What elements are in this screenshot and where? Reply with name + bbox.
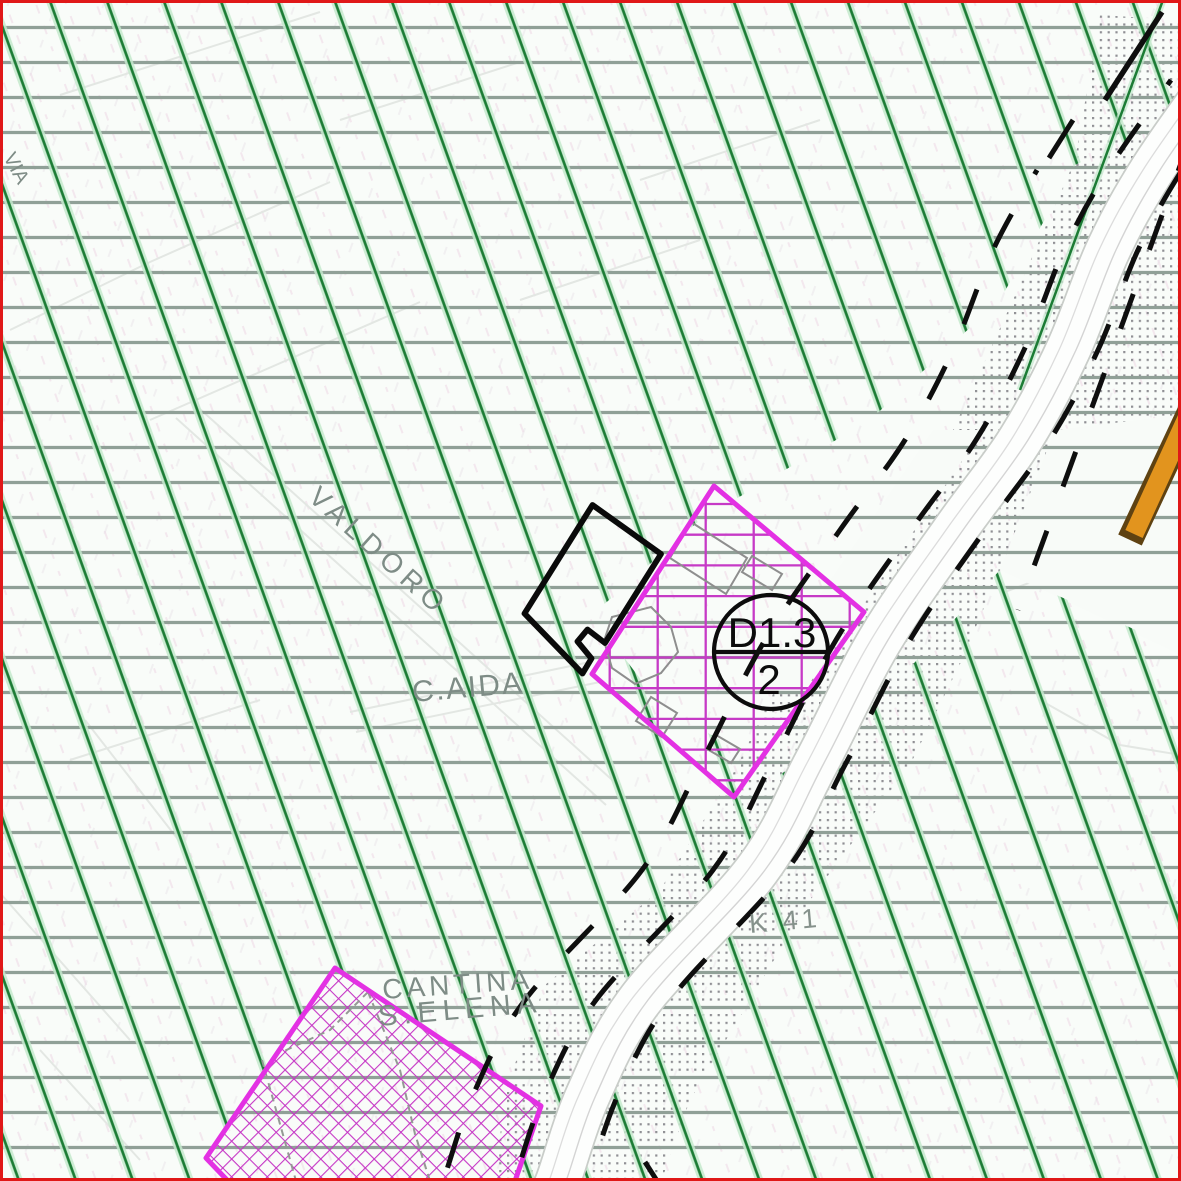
svg-text:K 41: K 41	[748, 903, 822, 939]
svg-text:2: 2	[757, 656, 780, 703]
svg-text:D1.3: D1.3	[728, 609, 817, 656]
